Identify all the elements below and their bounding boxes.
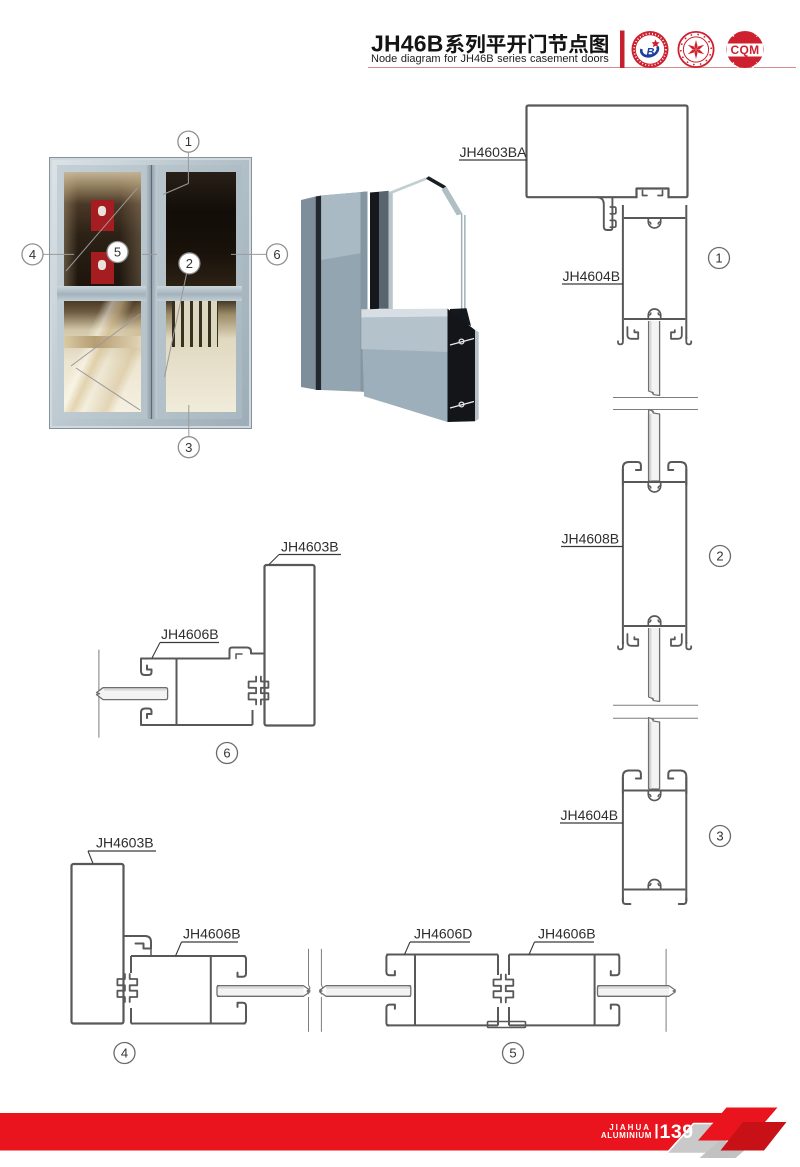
svg-text:5: 5	[114, 245, 121, 260]
svg-text:5: 5	[509, 1046, 516, 1061]
svg-text:4: 4	[121, 1046, 128, 1061]
svg-text:JH4603BA: JH4603BA	[460, 144, 528, 160]
svg-text:JH4606B: JH4606B	[538, 926, 596, 942]
svg-text:3: 3	[185, 440, 192, 455]
svg-text:4: 4	[29, 247, 36, 262]
svg-text:JH4606D: JH4606D	[414, 926, 472, 942]
svg-text:JH4603B: JH4603B	[96, 835, 154, 851]
svg-text:6: 6	[223, 746, 230, 761]
svg-text:1: 1	[715, 251, 722, 266]
svg-text:JH4606B: JH4606B	[183, 926, 241, 942]
svg-text:B: B	[647, 47, 655, 59]
svg-text:6: 6	[273, 247, 280, 262]
svg-text:JH4606B: JH4606B	[161, 626, 219, 642]
svg-text:JH4604B: JH4604B	[561, 807, 619, 823]
svg-text:1: 1	[185, 134, 192, 149]
svg-text:2: 2	[716, 549, 723, 564]
svg-text:3: 3	[716, 829, 723, 844]
svg-text:JH4603B: JH4603B	[281, 539, 339, 555]
svg-text:2: 2	[186, 256, 193, 271]
svg-text:CQM: CQM	[731, 43, 760, 57]
svg-text:JH4608B: JH4608B	[562, 531, 620, 547]
svg-text:JH4604B: JH4604B	[563, 268, 621, 284]
